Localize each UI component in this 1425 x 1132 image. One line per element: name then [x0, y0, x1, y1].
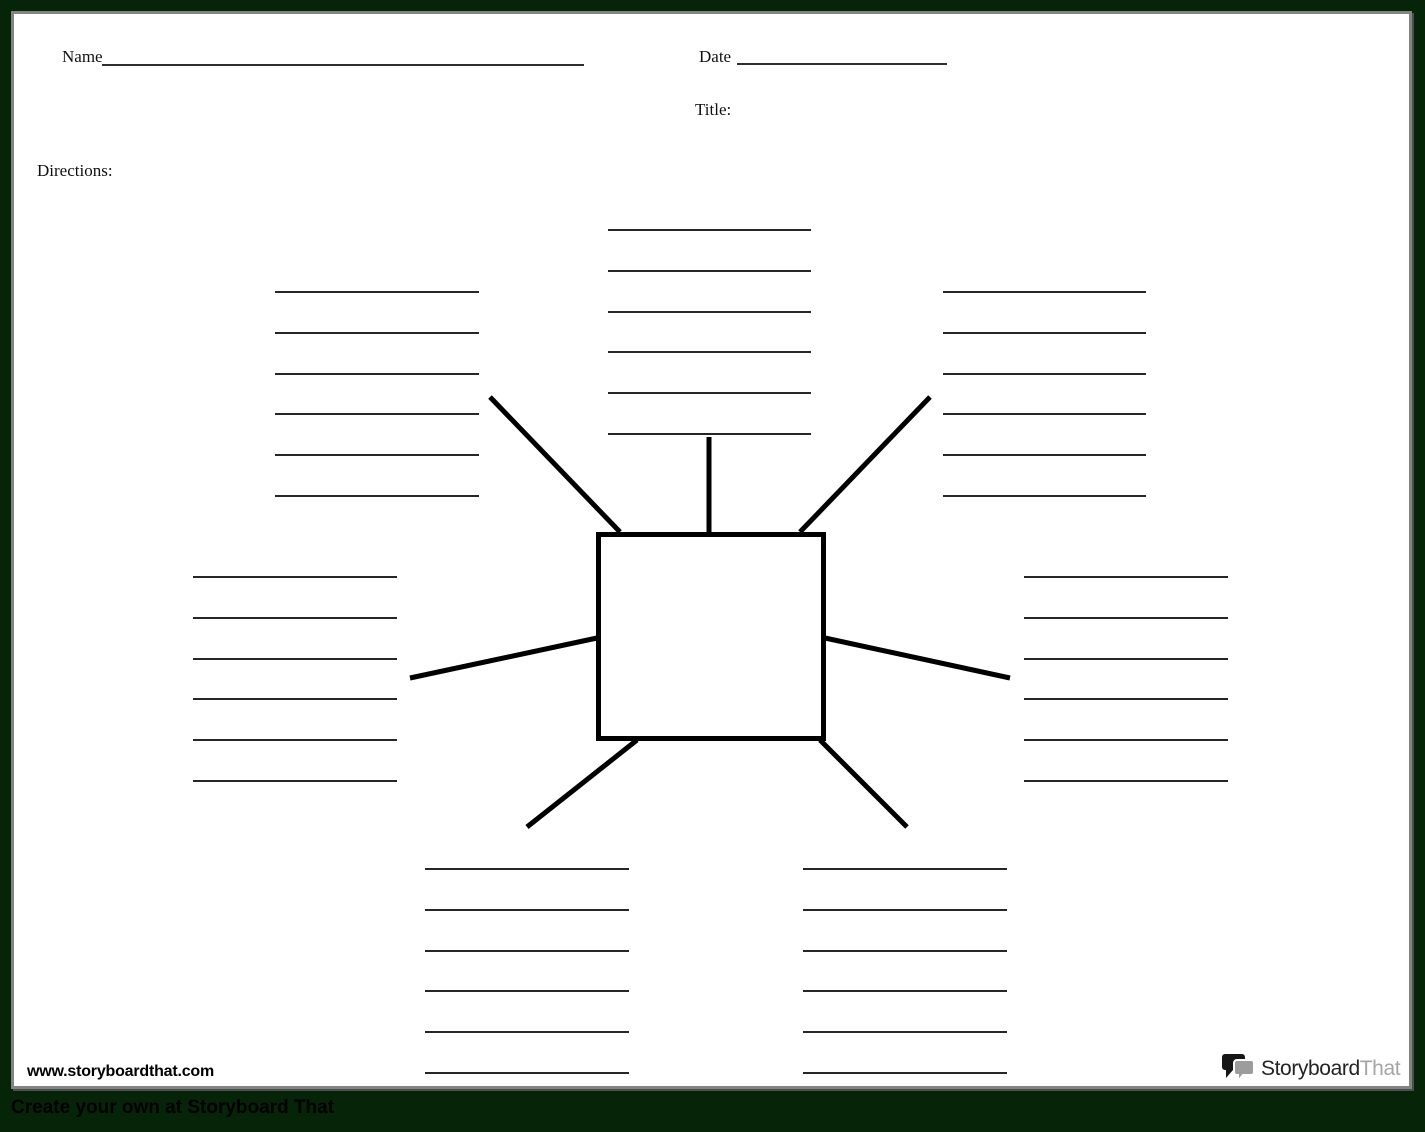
- spoke-bottom-right: [820, 740, 907, 827]
- blank-line: [803, 1072, 1007, 1074]
- blank-line: [608, 270, 811, 272]
- worksheet-frame: Name Date Title: Directions:: [0, 0, 1425, 1132]
- blank-line: [1024, 739, 1228, 741]
- date-label: Date: [699, 47, 731, 67]
- blank-line: [1024, 658, 1228, 660]
- website-url: www.storyboardthat.com: [27, 1063, 214, 1081]
- title-label: Title:: [695, 100, 731, 120]
- blank-line: [193, 576, 397, 578]
- cluster-middle-left: [193, 576, 397, 782]
- blank-line: [193, 617, 397, 619]
- name-fill-line: [102, 64, 584, 66]
- blank-line: [803, 868, 1007, 870]
- cluster-top-right: [943, 291, 1146, 497]
- blank-line: [803, 950, 1007, 952]
- blank-line: [275, 332, 479, 334]
- directions-label: Directions:: [37, 161, 113, 181]
- spoke-top-right: [800, 397, 930, 532]
- blank-line: [425, 909, 629, 911]
- blank-line: [275, 291, 479, 293]
- blank-line: [943, 373, 1146, 375]
- blank-line: [608, 351, 811, 353]
- cluster-top-left: [275, 291, 479, 497]
- blank-line: [193, 739, 397, 741]
- cluster-bottom-right: [803, 868, 1007, 1074]
- blank-line: [943, 454, 1146, 456]
- blank-line: [425, 868, 629, 870]
- blank-line: [608, 433, 811, 435]
- blank-line: [275, 373, 479, 375]
- blank-line: [803, 909, 1007, 911]
- cluster-middle-right: [1024, 576, 1228, 782]
- blank-line: [943, 495, 1146, 497]
- logo-text-that: That: [1360, 1057, 1400, 1080]
- cluster-top-center: [608, 229, 811, 435]
- blank-line: [943, 291, 1146, 293]
- speech-bubbles-icon: [1222, 1053, 1256, 1085]
- blank-line: [1024, 576, 1228, 578]
- blank-line: [608, 311, 811, 313]
- spoke-middle-right: [825, 638, 1010, 678]
- blank-line: [803, 1031, 1007, 1033]
- storyboardthat-logo: StoryboardThat: [1222, 1052, 1400, 1086]
- logo-wordmark: StoryboardThat: [1261, 1057, 1400, 1081]
- blank-line: [1024, 698, 1228, 700]
- cluster-bottom-left: [425, 868, 629, 1074]
- blank-line: [803, 990, 1007, 992]
- blank-line: [425, 1031, 629, 1033]
- blank-line: [275, 454, 479, 456]
- date-fill-line: [737, 63, 947, 65]
- blank-line: [193, 658, 397, 660]
- blank-line: [608, 229, 811, 231]
- blank-line: [275, 495, 479, 497]
- blank-line: [425, 1072, 629, 1074]
- spoke-bottom-left: [527, 740, 637, 827]
- blank-line: [943, 413, 1146, 415]
- blank-line: [943, 332, 1146, 334]
- blank-line: [425, 990, 629, 992]
- worksheet-page: Name Date Title: Directions:: [11, 11, 1412, 1089]
- name-label: Name: [62, 47, 103, 67]
- blank-line: [193, 780, 397, 782]
- blank-line: [1024, 780, 1228, 782]
- logo-text-storyboard: Storyboard: [1261, 1057, 1360, 1080]
- spoke-top-left: [490, 397, 620, 532]
- central-topic-box: [596, 532, 826, 741]
- create-your-own-tagline: Create your own at Storyboard That: [11, 1097, 334, 1119]
- blank-line: [425, 950, 629, 952]
- blank-line: [275, 413, 479, 415]
- spoke-middle-left: [410, 638, 597, 678]
- blank-line: [608, 392, 811, 394]
- blank-line: [193, 698, 397, 700]
- blank-line: [1024, 617, 1228, 619]
